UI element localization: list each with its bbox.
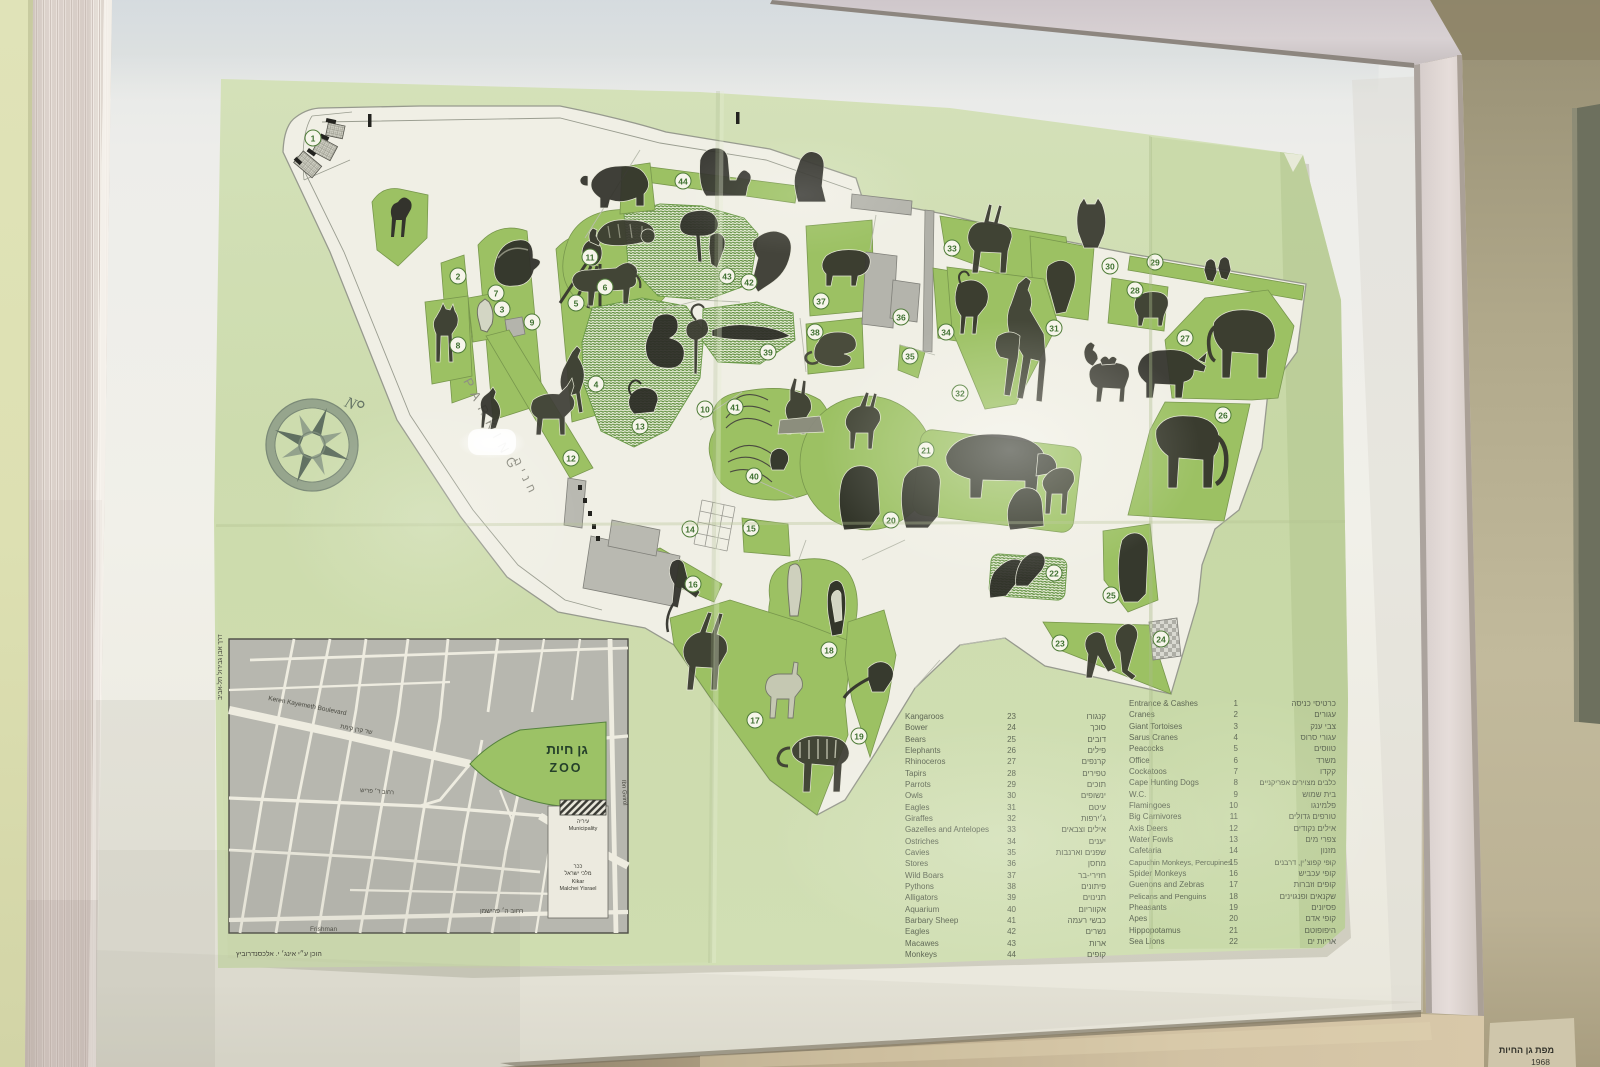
svg-text:Kangaroos: Kangaroos <box>905 712 944 721</box>
svg-text:39: 39 <box>763 348 773 358</box>
svg-text:מפת גן החיות: מפת גן החיות <box>1499 1045 1554 1055</box>
svg-text:מלכי ישראל: מלכי ישראל <box>564 870 591 877</box>
svg-text:14: 14 <box>685 525 695 535</box>
svg-text:גן חיות: גן חיות <box>546 742 588 757</box>
svg-text:10: 10 <box>700 405 710 415</box>
svg-text:23: 23 <box>1007 712 1016 721</box>
svg-text:Municipality: Municipality <box>569 826 598 832</box>
svg-text:18: 18 <box>824 646 834 656</box>
svg-text:קנגורו: קנגורו <box>1086 712 1106 721</box>
svg-text:קופים: קופים <box>1087 950 1106 959</box>
svg-text:1: 1 <box>311 134 316 144</box>
svg-text:ככר: ככר <box>574 864 583 870</box>
svg-text:38: 38 <box>810 328 820 338</box>
svg-text:28: 28 <box>1130 286 1140 296</box>
svg-text:9: 9 <box>530 318 535 328</box>
svg-text:דרך אבן גבירול תל-אביב: דרך אבן גבירול תל-אביב <box>216 634 224 700</box>
svg-text:19: 19 <box>854 732 864 742</box>
svg-text:16: 16 <box>688 580 698 590</box>
svg-text:40: 40 <box>749 472 759 482</box>
svg-text:עיריה: עיריה <box>577 819 589 825</box>
svg-text:25: 25 <box>1106 591 1116 601</box>
svg-text:26: 26 <box>1218 411 1228 421</box>
svg-text:1968: 1968 <box>1531 1057 1550 1067</box>
svg-text:24: 24 <box>1156 635 1166 645</box>
svg-text:3: 3 <box>500 305 505 315</box>
svg-text:13: 13 <box>635 422 645 432</box>
svg-text:42: 42 <box>744 278 754 288</box>
svg-text:ZOO: ZOO <box>549 761 582 775</box>
svg-text:11: 11 <box>586 253 595 263</box>
svg-text:36: 36 <box>896 313 906 323</box>
svg-text:23: 23 <box>1055 639 1065 649</box>
svg-text:8: 8 <box>456 341 461 351</box>
svg-text:2: 2 <box>456 272 461 282</box>
svg-text:17: 17 <box>750 716 760 726</box>
svg-text:43: 43 <box>722 272 732 282</box>
svg-text:אריות ים: אריות ים <box>1307 937 1336 946</box>
svg-text:6: 6 <box>603 283 608 293</box>
svg-text:Kikar: Kikar <box>572 879 585 885</box>
svg-text:27: 27 <box>1180 334 1190 344</box>
svg-text:33: 33 <box>947 244 957 254</box>
svg-text:7: 7 <box>494 289 499 299</box>
svg-text:37: 37 <box>816 297 826 307</box>
svg-text:5: 5 <box>574 299 579 309</box>
svg-text:30: 30 <box>1105 262 1115 272</box>
svg-text:41: 41 <box>730 403 740 413</box>
svg-text:Malchei Yisrael: Malchei Yisrael <box>560 886 597 892</box>
svg-text:4: 4 <box>594 380 599 390</box>
svg-text:12: 12 <box>566 454 576 464</box>
svg-text:Sea Lions: Sea Lions <box>1129 937 1165 946</box>
